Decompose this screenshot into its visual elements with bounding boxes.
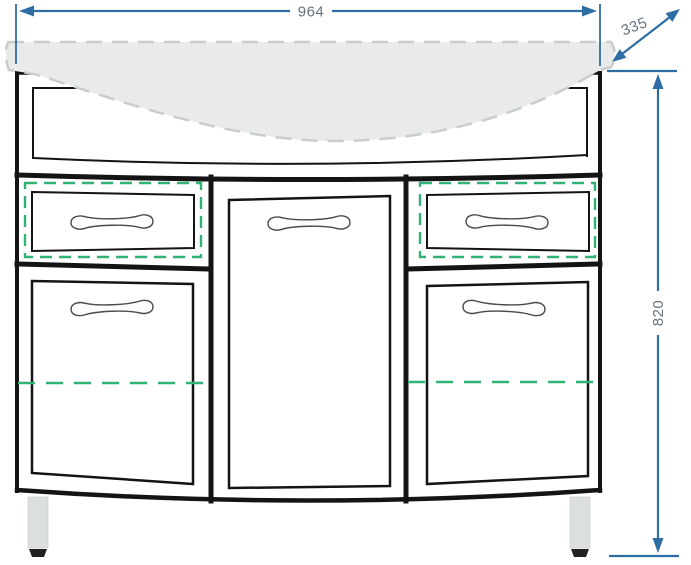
sink-countertop-shape <box>6 42 615 141</box>
apron-divider <box>17 175 600 180</box>
center-door-face <box>229 196 390 488</box>
sink-countertop <box>6 42 615 141</box>
left-leg <box>28 497 48 548</box>
height-arrow-up-icon <box>653 74 664 89</box>
width-arrow-left-icon <box>19 6 34 17</box>
apron-inner-bottom <box>33 155 587 164</box>
legs <box>28 497 590 557</box>
height-dimension: 820 <box>607 71 679 556</box>
left-drawer-divider <box>17 264 211 269</box>
width-value-label: 964 <box>298 4 325 21</box>
right-foot <box>571 549 589 557</box>
elevation-svg: 964 335 820 <box>0 0 691 565</box>
right-leg <box>570 497 590 548</box>
cabinet-bottom-edge <box>17 490 600 501</box>
vanity-cabinet-drawing: 964 335 820 <box>0 0 691 565</box>
left-foot <box>29 549 47 557</box>
right-door-handle-icon <box>463 300 545 316</box>
width-arrow-right-icon <box>582 6 597 17</box>
height-arrow-down-icon <box>653 538 664 553</box>
right-drawer-handle-icon <box>466 215 548 230</box>
left-drawer-handle-icon <box>71 215 153 230</box>
left-door-handle-icon <box>71 300 153 316</box>
center-door-handle-icon <box>268 216 350 231</box>
depth-dimension: 335 <box>612 9 680 62</box>
height-value-label: 820 <box>650 300 667 327</box>
right-drawer-divider <box>406 264 600 269</box>
